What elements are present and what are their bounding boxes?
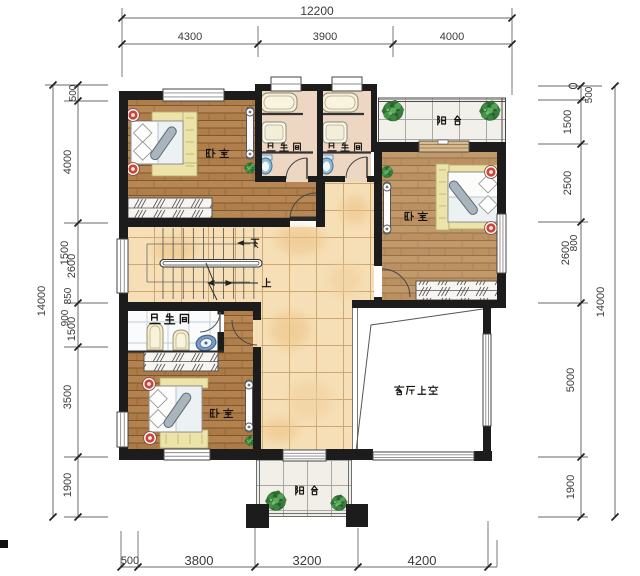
- svg-text:2500: 2500: [562, 171, 574, 195]
- svg-text:3900: 3900: [313, 31, 337, 43]
- svg-text:1900: 1900: [62, 473, 74, 497]
- svg-text:4300: 4300: [178, 31, 202, 43]
- svg-text:4000: 4000: [62, 150, 74, 174]
- svg-text:500: 500: [121, 555, 139, 567]
- svg-text:3200: 3200: [293, 553, 322, 568]
- svg-text:1500: 1500: [562, 110, 574, 134]
- svg-text:3500: 3500: [62, 385, 74, 409]
- svg-text:850: 850: [63, 287, 74, 304]
- svg-text:3800: 3800: [185, 553, 214, 568]
- svg-text:800: 800: [569, 234, 580, 251]
- svg-text:14000: 14000: [595, 287, 607, 318]
- svg-text:5000: 5000: [565, 368, 577, 392]
- svg-text:4000: 4000: [440, 31, 464, 43]
- svg-text:500: 500: [584, 86, 595, 103]
- svg-text:1900: 1900: [565, 475, 577, 499]
- svg-text:2600: 2600: [66, 254, 78, 278]
- svg-text:14000: 14000: [36, 286, 48, 317]
- svg-text:12200: 12200: [300, 4, 334, 18]
- svg-text:4200: 4200: [408, 553, 437, 568]
- svg-text:500: 500: [68, 84, 79, 101]
- svg-text:1500: 1500: [66, 317, 78, 341]
